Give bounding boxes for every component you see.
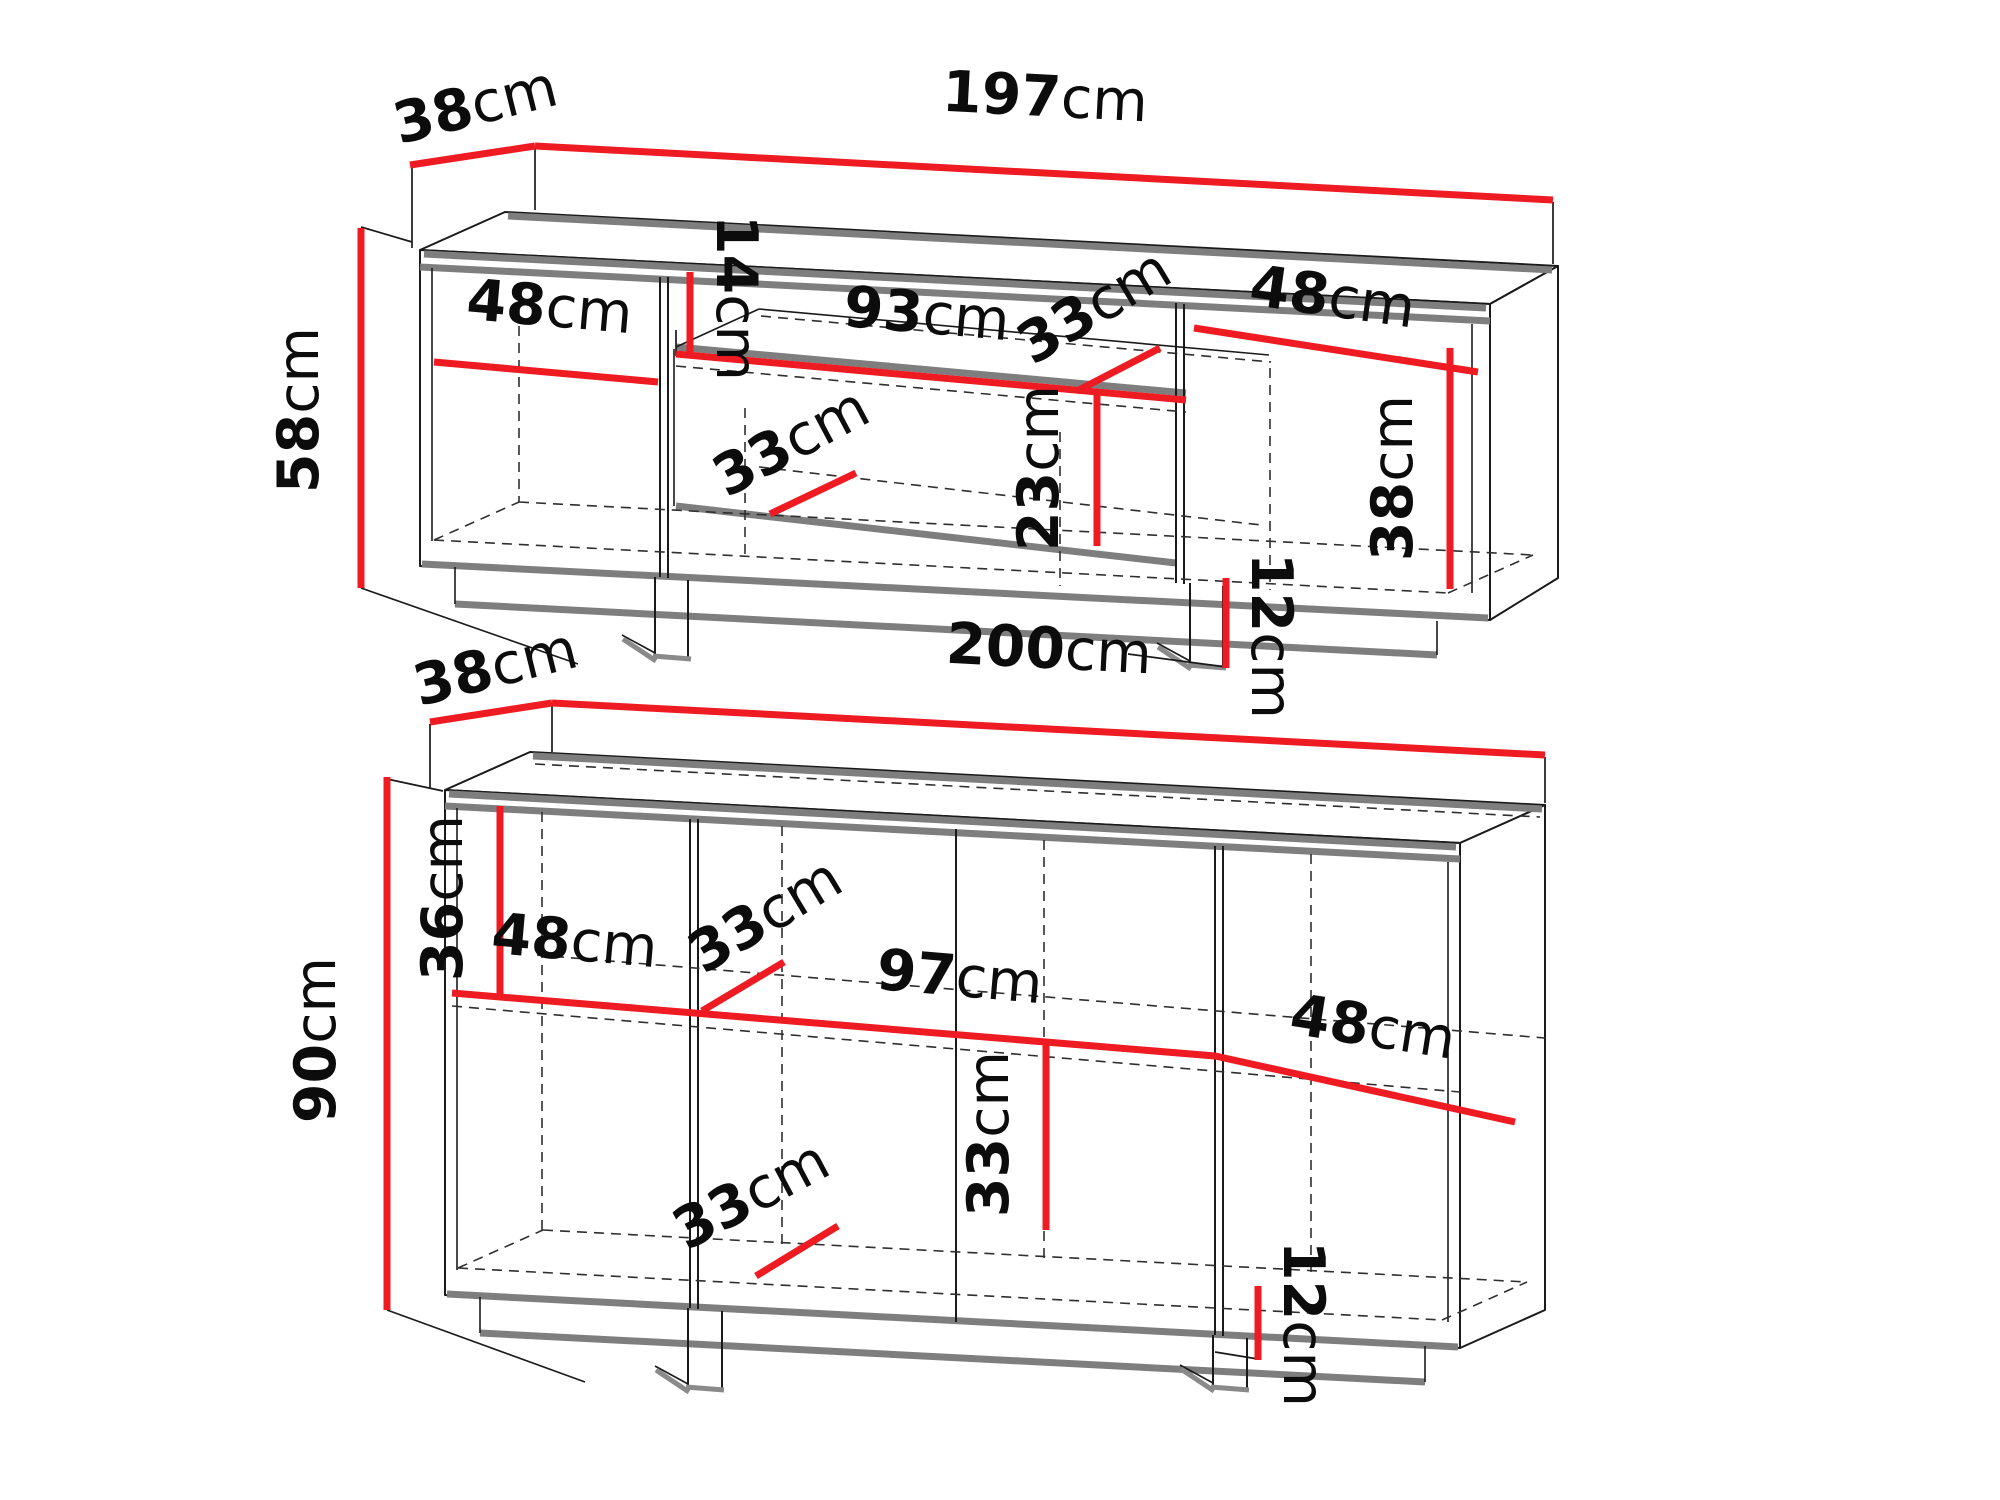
furniture-dimension-diagram: 38cm 197cm 58cm 14cm 48cm 93cm 33cm 48cm…	[0, 0, 2000, 1500]
diagram-canvas: 38cm 197cm 58cm 14cm 48cm 93cm 33cm 48cm…	[0, 0, 2000, 1500]
foot-left	[655, 1308, 724, 1392]
label-depth-38: 38cm	[387, 53, 564, 157]
label-width-200: 200cm	[944, 611, 1153, 688]
label-width-197: 197cm	[940, 59, 1149, 136]
floor-wall-line	[387, 1310, 585, 1382]
label-plinth-12: 12cm	[1238, 553, 1304, 719]
label-plinth-12: 12cm	[1270, 1241, 1336, 1407]
sideboard-diagram: 38cm 200cm 90cm 36cm 48cm 33cm 97cm 48cm…	[283, 611, 1545, 1407]
label-right-height-38: 38cm	[1360, 395, 1426, 561]
label-top-36: 36cm	[410, 815, 476, 981]
right-side-face	[1490, 266, 1558, 620]
dim-line-width-200	[552, 703, 1545, 755]
label-height-90: 90cm	[283, 957, 349, 1123]
label-shelf-14: 14cm	[703, 215, 769, 381]
label-middle-height-23: 23cm	[1006, 385, 1072, 551]
right-side-face	[1460, 805, 1545, 1348]
label-height-58: 58cm	[266, 327, 332, 493]
tv-stand-diagram: 38cm 197cm 58cm 14cm 48cm 93cm 33cm 48cm…	[266, 53, 1558, 719]
foot-right	[1180, 1335, 1249, 1391]
dim-line-width-197	[535, 146, 1553, 200]
label-middle-height-33: 33cm	[956, 1051, 1022, 1217]
